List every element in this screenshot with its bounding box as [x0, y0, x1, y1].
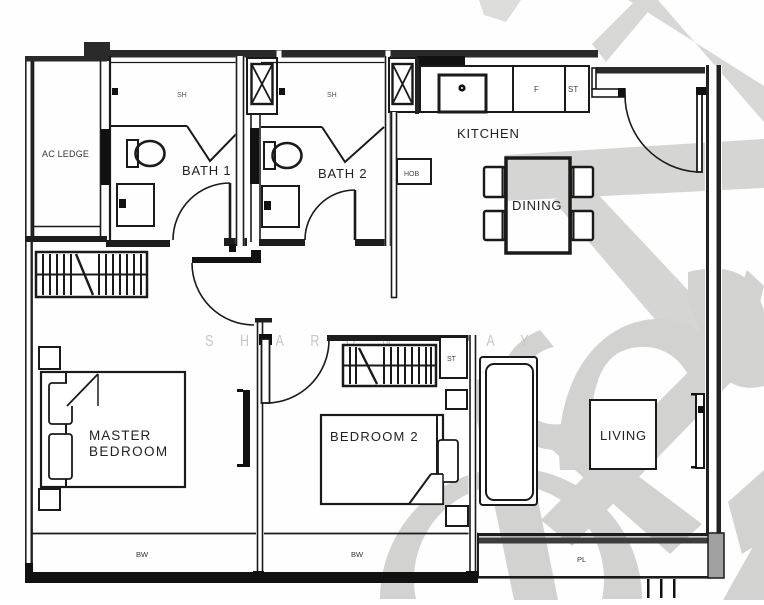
svg-text:BEDROOM: BEDROOM: [89, 444, 169, 459]
svg-text:SH: SH: [327, 92, 337, 99]
svg-text:AC LEDGE: AC LEDGE: [42, 149, 89, 159]
svg-text:BW: BW: [351, 550, 364, 559]
svg-text:SH: SH: [177, 92, 187, 99]
svg-text:BW: BW: [136, 550, 149, 559]
svg-text:HOB: HOB: [404, 171, 420, 178]
svg-text:BEDROOM 2: BEDROOM 2: [330, 429, 419, 444]
svg-text:LIVING: LIVING: [600, 428, 647, 443]
svg-text:MASTER: MASTER: [89, 428, 151, 443]
svg-text:PL: PL: [577, 555, 586, 564]
svg-text:DINING: DINING: [512, 198, 562, 213]
svg-text:F: F: [534, 85, 539, 94]
svg-text:ST: ST: [447, 356, 457, 363]
svg-text:ST: ST: [568, 85, 578, 94]
svg-text:KITCHEN: KITCHEN: [457, 126, 520, 141]
svg-text:BATH 1: BATH 1: [182, 163, 231, 178]
svg-text:BATH 2: BATH 2: [318, 166, 367, 181]
